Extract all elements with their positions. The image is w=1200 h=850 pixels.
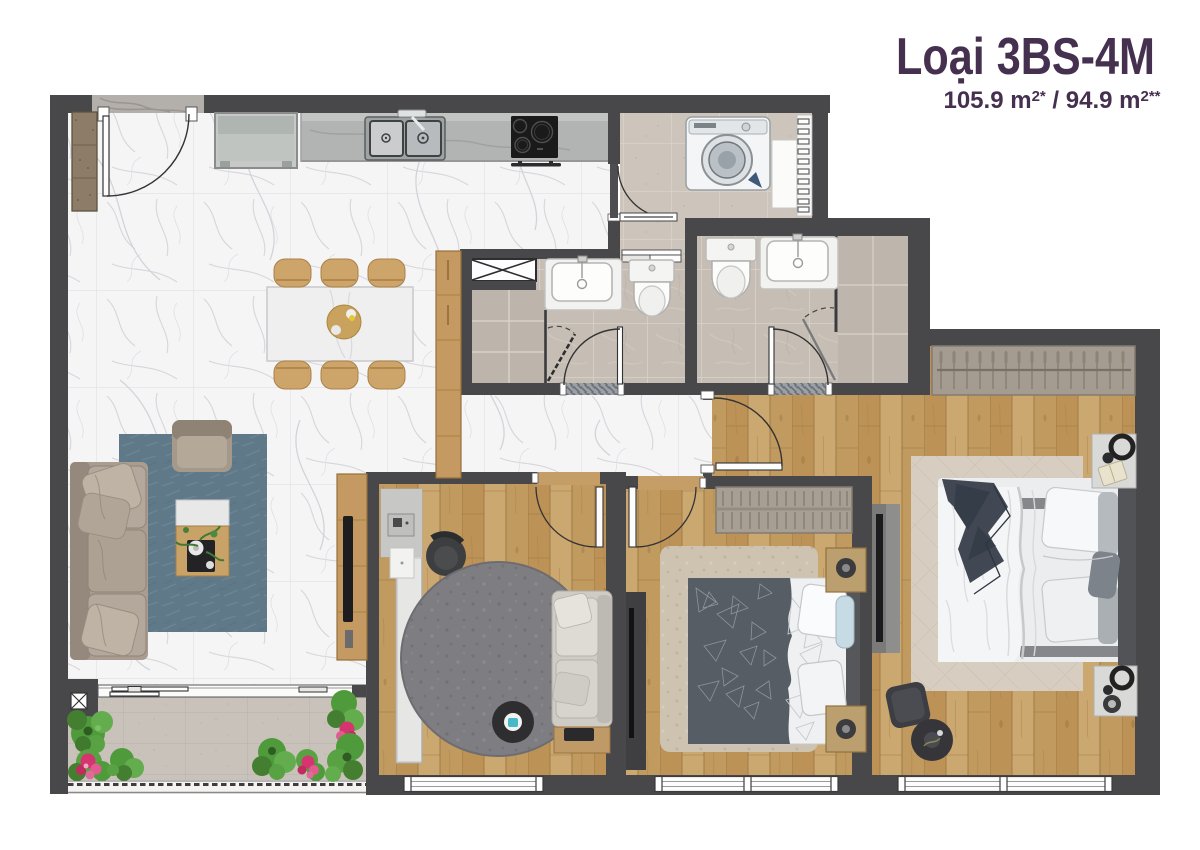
svg-text:Loại 3BS-4M: Loại 3BS-4M <box>896 28 1155 86</box>
svg-text:105.9 m2* / 94.9 m2**: 105.9 m2* / 94.9 m2** <box>943 87 1160 114</box>
